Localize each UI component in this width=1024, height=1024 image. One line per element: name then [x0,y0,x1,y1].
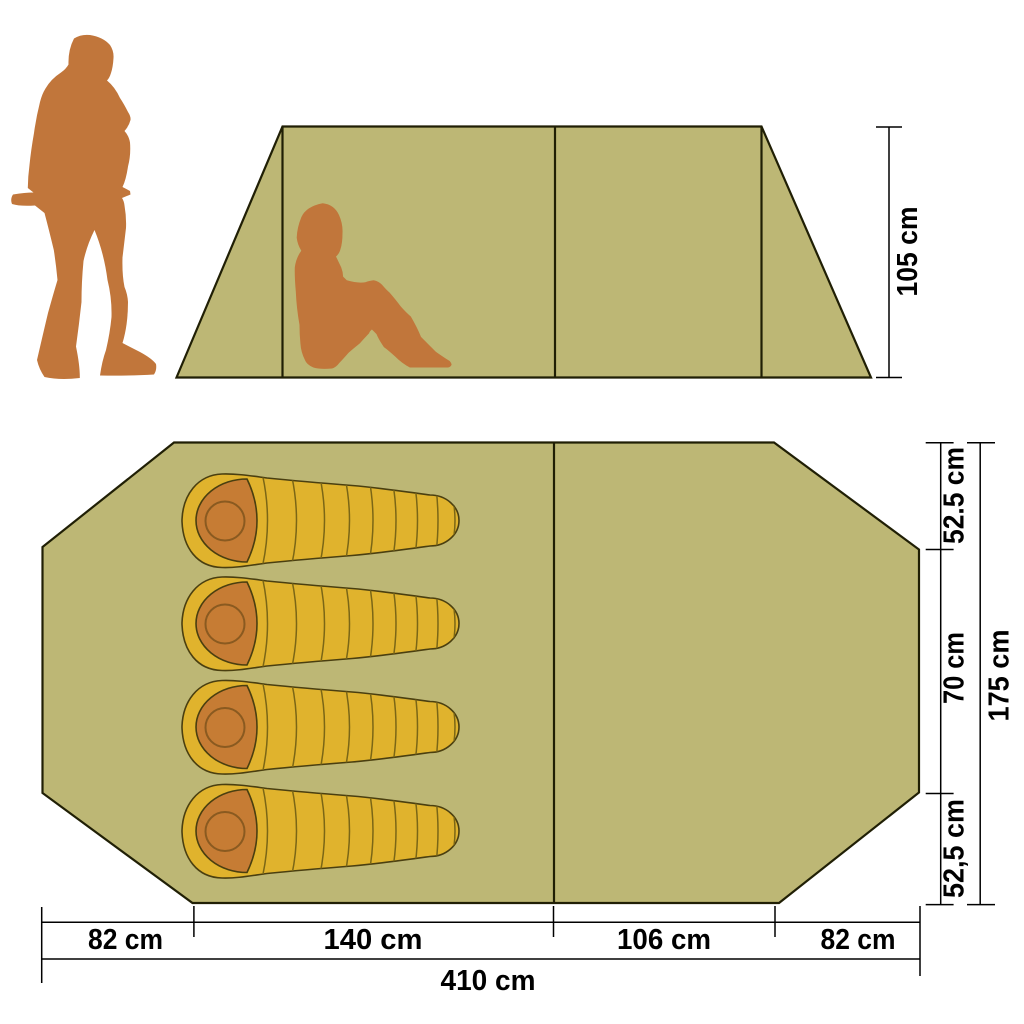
svg-text:82 cm: 82 cm [88,924,163,956]
svg-text:70 cm: 70 cm [939,632,971,704]
svg-text:82 cm: 82 cm [821,924,896,956]
svg-text:140 cm: 140 cm [324,924,423,956]
svg-text:105 cm: 105 cm [892,207,924,297]
svg-text:52,5 cm: 52,5 cm [939,799,971,898]
svg-text:410 cm: 410 cm [441,965,536,997]
svg-text:52.5 cm: 52.5 cm [939,447,971,544]
svg-text:175 cm: 175 cm [984,630,1016,722]
svg-text:106 cm: 106 cm [617,924,711,956]
